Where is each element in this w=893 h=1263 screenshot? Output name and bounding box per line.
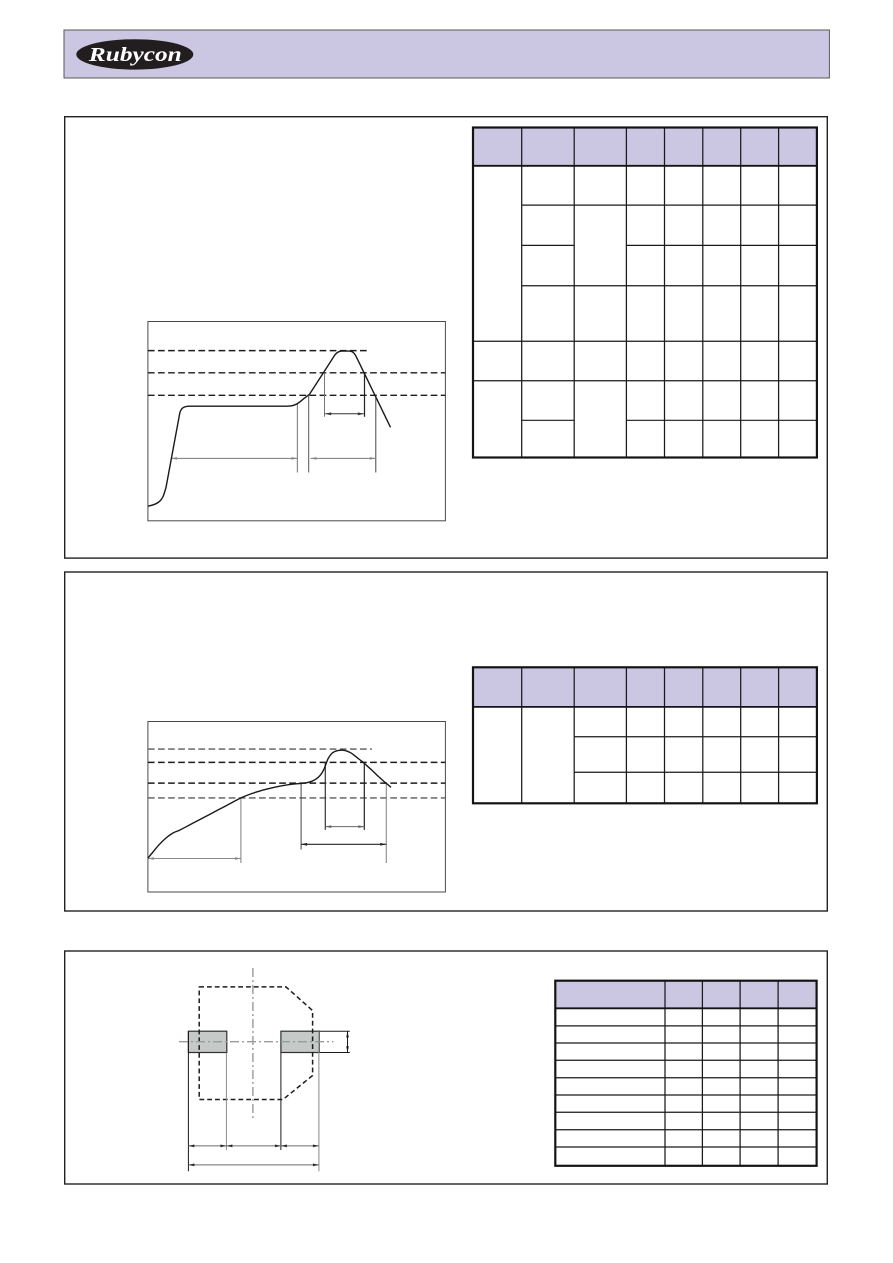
svg-text:Rubycon: Rubycon bbox=[88, 44, 182, 66]
